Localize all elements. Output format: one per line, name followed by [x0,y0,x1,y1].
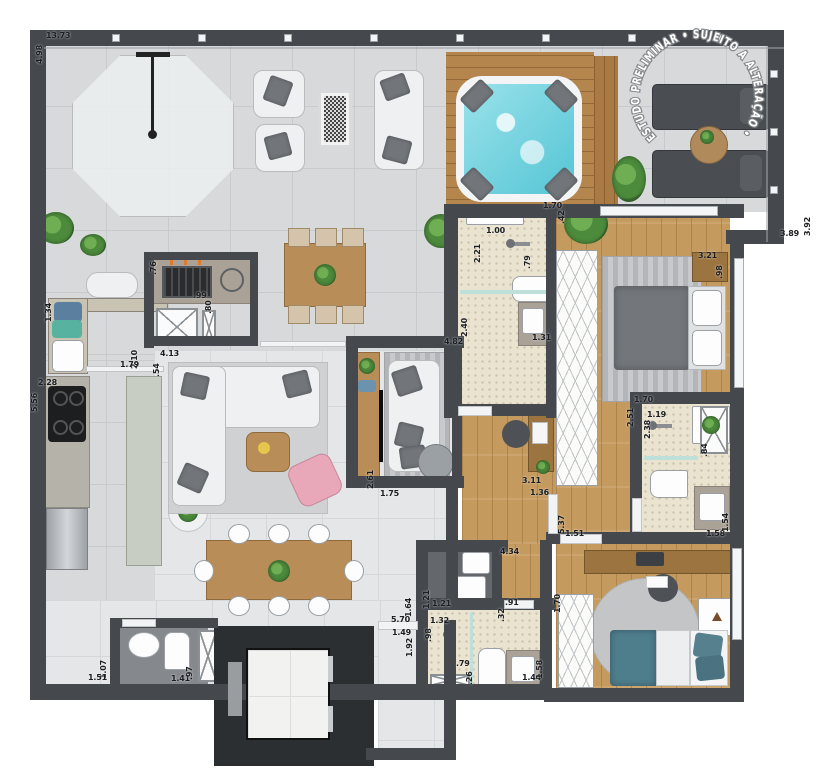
dimension-label: 4.34 [500,548,519,556]
lavabo-sink [128,632,160,658]
svg-text:ESTUDO PRELIMINAR • SUJEITO A: ESTUDO PRELIMINAR • SUJEITO A ALTERAÇÃO … [628,27,766,144]
bath1-shower-dot [506,239,515,248]
wall-bath3-bottom [416,684,552,700]
watermark: ESTUDO PRELIMINAR • SUJEITO A ALTERAÇÃO … [612,12,782,182]
dining-centerpiece [268,560,290,582]
sofa-pillow [180,372,210,401]
parasol-handle [136,52,170,57]
dimension-label: 1.70 [543,202,562,210]
railing-post [370,34,378,42]
dimension-label: 2.38 [644,420,652,439]
wall-outer-bottom-right [544,688,744,702]
office-plant [536,460,550,474]
dimension-label: 1.75 [380,490,399,498]
tv-bench-cloth [358,380,376,392]
living-terrace-threshold [260,341,346,347]
bedroom2-bed-teal [610,630,656,686]
kitchen-island [126,376,162,566]
suite-window [600,206,718,216]
dimension-label: .76 [150,261,158,275]
dimension-label: 1.31 [532,334,551,342]
outdoor-chair [342,305,364,324]
dining-chair [228,524,250,544]
suite-wardrobe [556,250,598,486]
parasol-hub [148,130,157,139]
dimension-label: .97 [186,666,194,680]
dining-chair [308,596,330,616]
dimension-label: .98 [425,628,433,642]
dimension-label: 2.61 [367,470,375,489]
dimension-label: .99 [193,292,207,300]
dimension-label: .26 [466,671,474,685]
wall-wc-right [492,550,502,602]
railing-post [284,34,292,42]
wall-bath1-right [546,204,556,418]
wall-grill-top [144,252,258,260]
dimension-label: 2.51 [627,408,635,427]
bedroom2-bed-white [656,630,690,686]
office-chair [502,420,530,448]
dimension-label: 1.51 [565,530,584,538]
railing-post [456,34,464,42]
dimension-label: 4.98 [36,45,44,64]
wc-sink [462,552,490,574]
fridge [46,508,88,570]
wall-lavabo-left [110,618,120,692]
lavabo-toilet [164,632,190,670]
suite-side-window [734,258,744,388]
outdoor-chair [315,305,337,324]
parasol-pole [151,57,154,135]
elevator-pad [228,662,242,716]
dimension-label: 13.73 [46,32,70,40]
bath1-toilet [512,276,548,302]
dimension-label: .91 [505,599,519,607]
wall-grill-right [250,252,258,344]
terrace-plant [80,234,106,256]
wall-grill-bottom [144,336,258,346]
wall-hall-right [444,620,456,756]
tv-side-table [418,444,454,480]
tv-bench-plant [359,358,375,374]
dimension-label: 1.19 [647,411,666,419]
dimension-label: 1.21 [423,590,431,609]
wall-wc-left [416,540,428,696]
dimension-label: 1.54 [722,513,730,532]
outdoor-chair [342,228,364,247]
dimension-label: 3.21 [698,252,717,260]
dimension-label: 1.79 [120,361,139,369]
elevator-door [328,656,333,682]
dimension-label: 3.11 [522,477,541,485]
dimension-label: .79 [456,660,470,668]
nightstand-plant [702,416,720,434]
dimension-label: 4.82 [444,338,463,346]
dimension-label: 3.92 [804,217,812,236]
bedroom2-wardrobe [558,594,594,688]
office-laptop [532,422,548,444]
dining-chair [308,524,330,544]
dimension-label: 1.00 [486,227,505,235]
tv-screen [379,390,383,462]
outdoor-chair [288,305,310,324]
cooktop-burner [53,420,68,435]
dimension-label: 1.70 [554,594,562,613]
wall-hall-bottom [366,748,456,760]
cooktop-burner [53,391,68,406]
laundry-towel-blue [54,302,82,322]
laundry-sink [52,340,84,372]
bedroom2-window [732,548,742,640]
dimension-label: 4.13 [160,350,179,358]
railing-post [112,34,120,42]
grill-sink [220,268,244,292]
wall-outer-left [30,30,46,700]
dimension-label: 1.92 [406,638,414,657]
dimension-label: 1.34 [45,303,53,322]
cooktop-burner [69,391,84,406]
bedroom2-pillow [695,655,725,682]
dining-chair [268,596,290,616]
dining-chair [194,560,214,582]
suite-bed-duvet [614,286,690,370]
dimension-label: .84 [701,443,709,457]
wall-outer-bottom-left [30,684,454,700]
dimension-label: 3.89 [780,230,799,238]
dimension-label: 1.51 [88,674,107,682]
dimension-label: 5.56 [31,393,39,412]
laundry-towel-teal [52,320,82,338]
elevator-door [328,706,333,732]
watermark-text: ESTUDO PRELIMINAR • SUJEITO A ALTERAÇÃO … [628,27,766,144]
wall-tvroom-left [346,336,358,488]
railing-post [770,186,778,194]
outdoor-chair [288,228,310,247]
dining-chair [344,560,364,582]
desk-paper [646,576,668,588]
dimension-label: .98 [716,265,724,279]
railing-post [542,34,550,42]
coffee-table-decor [258,442,270,454]
elevator-cab [246,648,330,740]
dimension-label: 1.49 [392,629,411,637]
dimension-label: .42 [558,210,566,224]
bath3-toilet [478,648,506,688]
suite-pillow [692,330,722,366]
outdoor-dining-plant [314,264,336,286]
cooktop-burner [69,420,84,435]
dimension-label: 1.70 [634,396,653,404]
dining-chair [268,524,290,544]
bath2-toilet [650,470,688,498]
dimension-label: 1.21 [432,600,451,608]
suite-pillow [692,290,722,326]
dimension-label: 1.36 [530,489,549,497]
dimension-label: .32 [498,608,506,622]
terrace-bench [86,272,138,298]
dimension-label: .54 [153,363,161,377]
floor-plan: 13.734.983.893.921.70.421.002.21.792.401… [0,0,818,768]
bath2-door [632,498,642,532]
dimension-label: 2.40 [461,318,469,337]
fire-table-pebbles [324,96,346,142]
dimension-label: 2.28 [38,379,57,387]
dimension-label: .80 [205,300,213,314]
bath1-door [458,406,492,416]
bath1-glass [460,290,548,294]
dimension-label: 5.70 [391,616,410,624]
outdoor-chair [315,228,337,247]
railing-post [198,34,206,42]
dimension-label: 1.32 [430,617,449,625]
lavabo-door [122,619,156,627]
bath2-glass [644,456,698,460]
dimension-label: 2.21 [474,244,482,263]
bath1-sink [522,308,544,334]
dimension-label: 1.58 [536,660,544,679]
dimension-label: .79 [524,255,532,269]
desk-laptop [636,552,664,566]
dining-chair [228,596,250,616]
